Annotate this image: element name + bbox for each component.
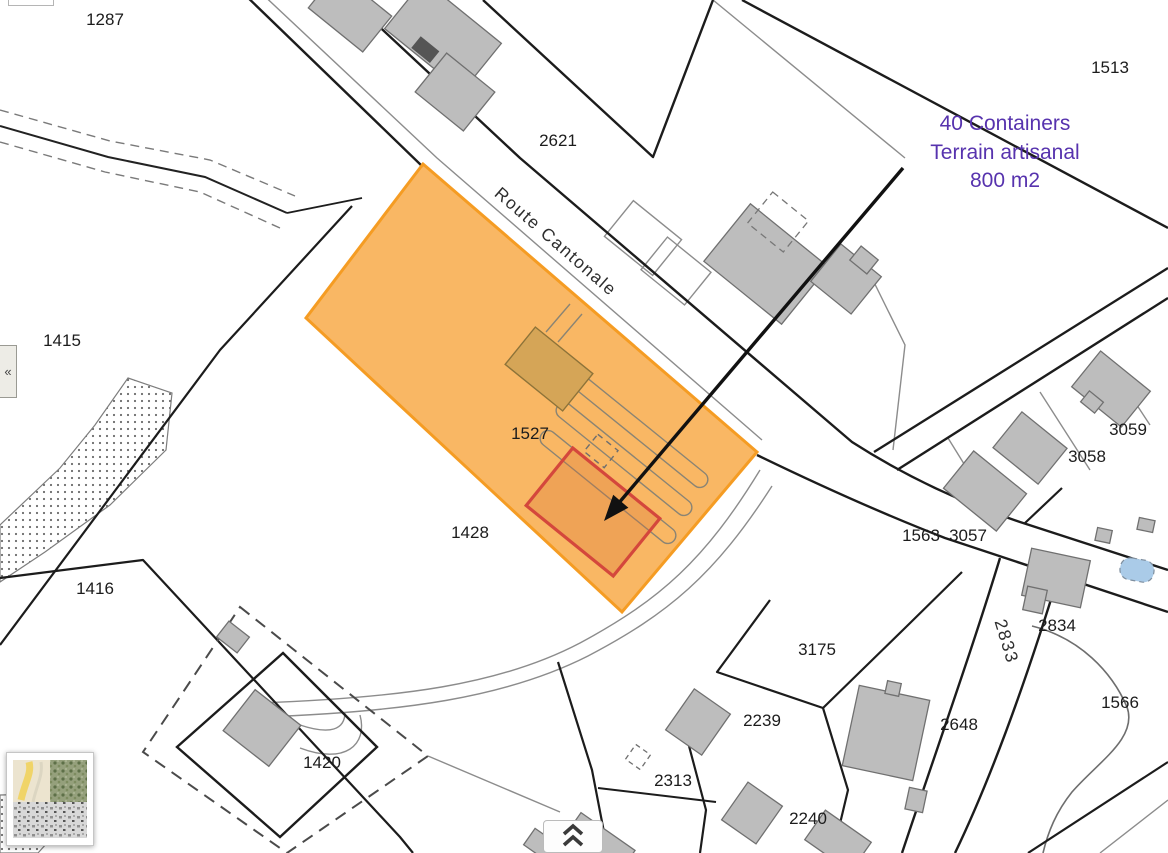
parcel-label: 3058 [1068,447,1106,466]
parcel-label: 1416 [76,579,114,598]
parcel-label: 2648 [940,715,978,734]
expand-bottom-panel-button[interactable] [543,820,603,853]
parcel-label: 1287 [86,10,124,29]
parcel-label: 2621 [539,131,577,150]
parcel-label: 1415 [43,331,81,350]
parcel-label: 3057 [949,526,987,545]
top-panel-sliver [8,0,54,6]
parcel-label: 1527 [511,424,549,443]
collapse-left-panel-button[interactable]: « [0,345,17,398]
parcel-label: 2239 [743,711,781,730]
parcel-label: 1420 [303,753,341,772]
parcel-label: 1513 [1091,58,1129,77]
annotation-line-1: 40 Containers [885,110,1125,139]
parcel-label: 1563 [902,526,940,545]
overview-map-thumbnail[interactable] [6,752,94,846]
parcel-label: 2313 [654,771,692,790]
annotation-label: 40 Containers Terrain artisanal 800 m2 [885,110,1125,196]
parcel-label: 3175 [798,640,836,659]
chevron-left-double-icon: « [4,364,11,379]
annotation-line-2: Terrain artisanal [885,139,1125,168]
parcel-label: 1566 [1101,693,1139,712]
parcel-label: 1428 [451,523,489,542]
parcel-label: 2834 [1038,616,1076,635]
map-viewport: 1287262115131415141614281527305930581563… [0,0,1168,853]
parcel-label: 3059 [1109,420,1147,439]
minimap-image [13,760,87,838]
annotation-line-3: 800 m2 [885,167,1125,196]
chevron-up-double-icon [544,821,602,852]
parcel-label: 2240 [789,809,827,828]
